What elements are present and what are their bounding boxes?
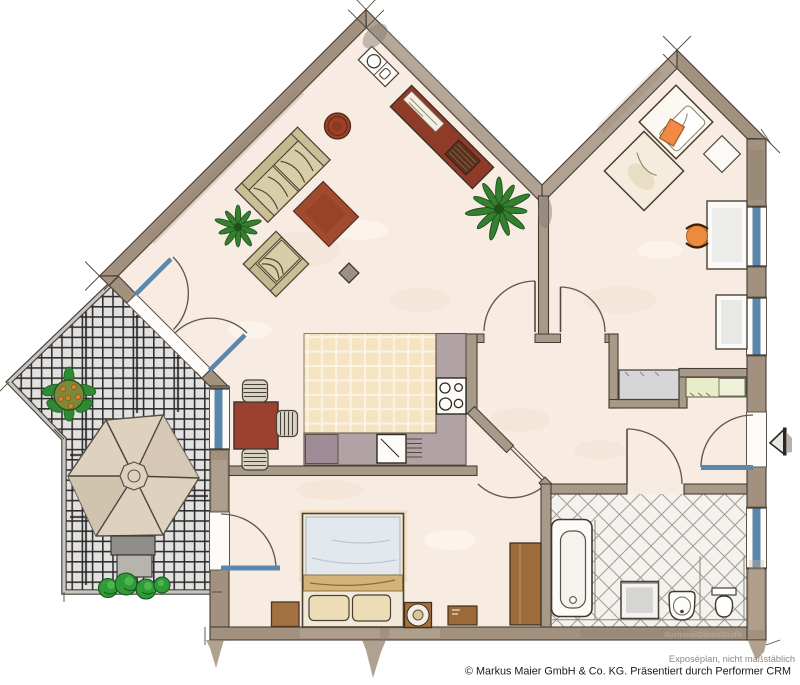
svg-text:© Markus Maier GmbH & Co. KG.: © Markus Maier GmbH & Co. KG. Präsentier… xyxy=(465,666,791,678)
svg-text:Exposéplan, nicht maßstäblich: Exposéplan, nicht maßstäblich xyxy=(669,654,795,664)
svg-text:IllustrationDimmoGrafik: IllustrationDimmoGrafik xyxy=(664,630,742,639)
